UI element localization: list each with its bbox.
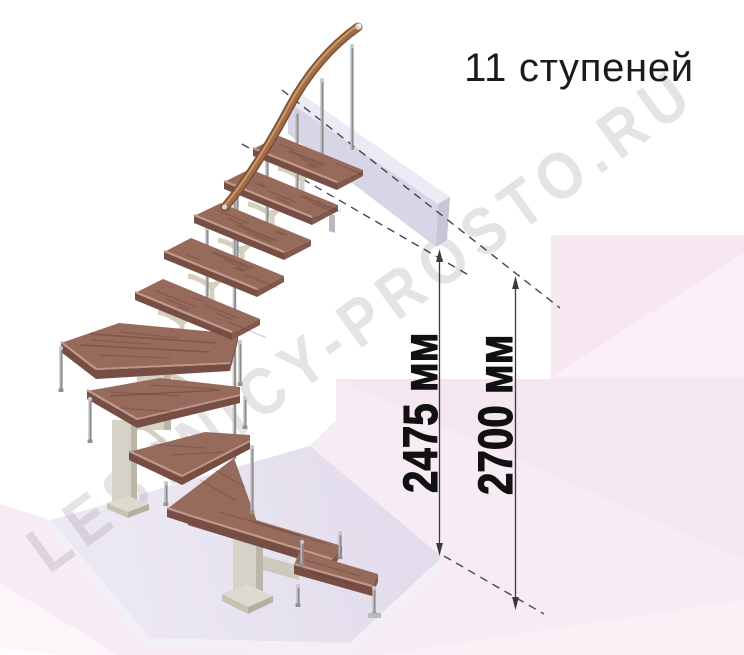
svg-text:2700 мм: 2700 мм — [470, 334, 523, 495]
svg-text:11 ступеней: 11 ступеней — [464, 46, 694, 90]
svg-text:2475 мм: 2475 мм — [395, 332, 448, 493]
